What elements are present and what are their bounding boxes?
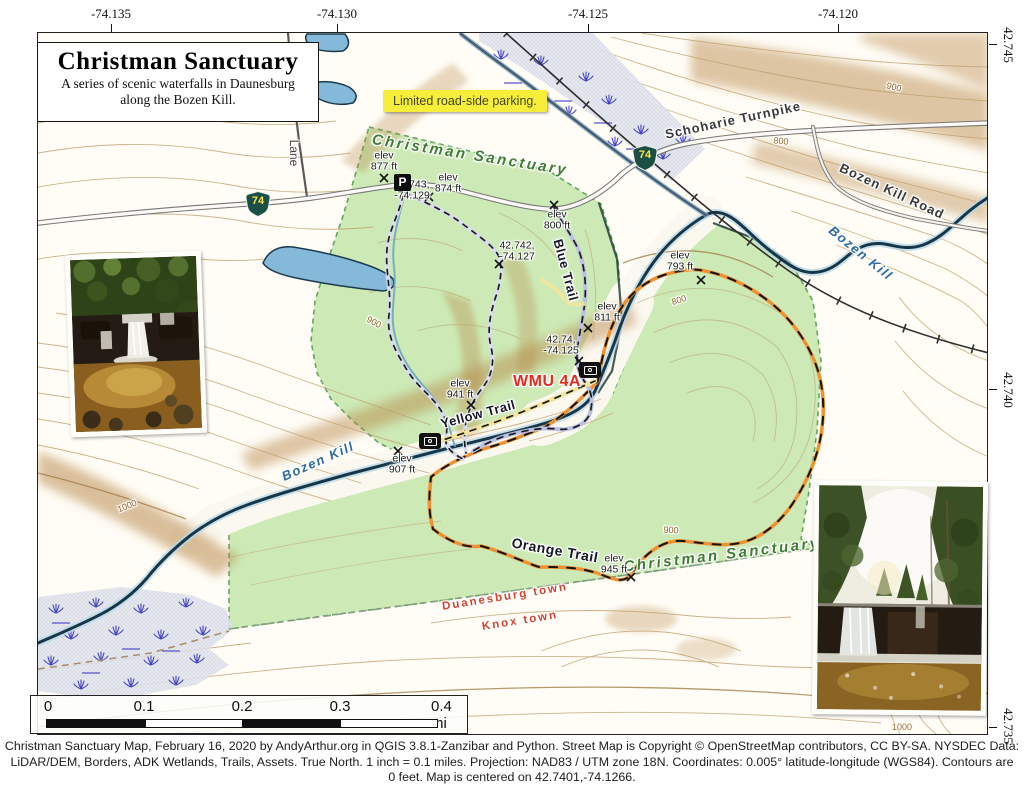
contour-label: 800 <box>773 135 789 147</box>
elev-line: 793 ft <box>667 260 693 272</box>
elev-point-label: elev877 ft <box>371 151 397 172</box>
map-subtitle-line2: along the Bozen Kill. <box>38 92 318 108</box>
elev-line: 877 ft <box>371 160 397 172</box>
scale-tick-label: 0 <box>44 698 52 715</box>
elev-point-label: elev874 ft <box>435 173 461 194</box>
elev-point-label: elev800 ft <box>544 210 570 231</box>
elev-line: 907 ft <box>389 463 415 475</box>
waterfall-photo-inset <box>812 480 988 716</box>
axis-top-label: -74.125 <box>568 6 608 22</box>
coord-line: -74.127 <box>499 250 535 262</box>
axis-tick <box>337 24 338 32</box>
elev-line: 800 ft <box>544 219 570 231</box>
scale-segment <box>242 720 340 727</box>
coord-point-label: 42.742,-74.127 <box>499 241 535 262</box>
credits-line3: 0 feet. Map is centered on 42.7401,-74.1… <box>0 770 1024 786</box>
axis-right-label: 42.740 <box>1000 372 1016 408</box>
parking-note: Limited road-side parking. <box>383 90 547 112</box>
camera-body <box>584 366 597 375</box>
camera-lens <box>428 439 432 443</box>
elev-point-label: elev907 ft <box>389 454 415 475</box>
elev-line: 945 ft <box>601 563 627 575</box>
coord-line: -74.125 <box>543 344 579 356</box>
contour-label: 900 <box>663 525 679 536</box>
axis-top-label: -74.135 <box>91 6 131 22</box>
camera-icon <box>419 433 441 449</box>
route-number: 74 <box>631 149 659 161</box>
elev-point-label: elev941 ft <box>447 379 473 400</box>
camera-body <box>424 437 437 446</box>
credits-line1: Christman Sanctuary Map, February 16, 20… <box>0 739 1024 755</box>
elev-point-label: elev811 ft <box>594 302 620 323</box>
route-number: 74 <box>244 195 272 207</box>
scale-bar: 0 0.1 0.2 0.3 0.4 mi <box>30 695 468 734</box>
scale-tick-label: 0.2 <box>232 698 253 715</box>
camera-lens <box>588 368 592 372</box>
route-74-shield: 74 <box>631 144 659 172</box>
map-page: Christman Sanctuary A series of scenic w… <box>0 0 1024 791</box>
camera-icon <box>579 362 601 378</box>
elev-line: 941 ft <box>447 388 473 400</box>
elev-line: 811 ft <box>594 311 620 323</box>
scale-tick-label: 0.1 <box>134 698 155 715</box>
axis-tick <box>838 24 839 32</box>
elev-point-label: elev945 ft <box>601 554 627 575</box>
elev-point-label: elev793 ft <box>667 251 693 272</box>
elev-line: 874 ft <box>435 182 461 194</box>
coord-point-label: 42.74,-74.125 <box>543 335 579 356</box>
scale-segment <box>47 720 145 727</box>
waterfall-photo-inset <box>65 251 207 438</box>
title-box: Christman Sanctuary A series of scenic w… <box>37 42 319 122</box>
map-title: Christman Sanctuary <box>38 48 318 76</box>
map-credits: Christman Sanctuary Map, February 16, 20… <box>0 739 1024 786</box>
axis-right-label: 42.745 <box>1000 27 1016 63</box>
route-74-shield: 74 <box>244 190 272 218</box>
lane-road-label: Lane <box>287 140 301 167</box>
parking-letter: P <box>398 175 406 189</box>
scale-tick-label: 0.3 <box>330 698 351 715</box>
scale-segment <box>145 720 243 727</box>
scale-segment <box>340 720 438 727</box>
contour-label: 1000 <box>892 722 912 732</box>
credits-line2: LiDAR/DEM, Borders, ADK Wetlands, Trails… <box>0 755 1024 771</box>
axis-tick <box>989 44 997 45</box>
scale-bar-segments <box>46 719 438 728</box>
map-subtitle-line1: A series of scenic waterfalls in Daunesb… <box>38 76 318 92</box>
axis-tick <box>111 24 112 32</box>
axis-tick <box>989 727 997 728</box>
parking-icon: P <box>394 174 411 191</box>
axis-top-label: -74.120 <box>818 6 858 22</box>
axis-tick <box>989 389 997 390</box>
axis-top-label: -74.130 <box>317 6 357 22</box>
wmu-label: WMU 4A <box>513 373 581 391</box>
axis-tick <box>588 24 589 32</box>
